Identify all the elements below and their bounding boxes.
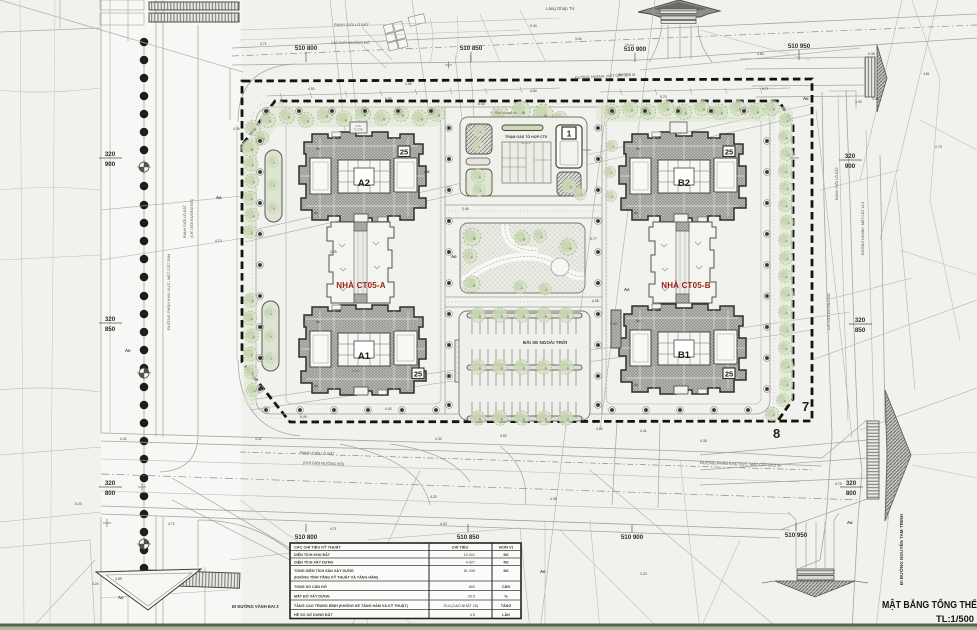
- svg-text:4.35: 4.35: [700, 439, 707, 443]
- svg-text:4.35: 4.35: [550, 497, 557, 501]
- svg-text:4.41: 4.41: [640, 429, 647, 433]
- svg-text:800: 800: [105, 490, 116, 497]
- svg-text:TRẠM GAS TỖ HỢP CT5: TRẠM GAS TỖ HỢP CT5: [505, 134, 547, 139]
- svg-text:B1: B1: [678, 350, 691, 361]
- svg-text:DIỆN TÍCH XÂY DỰNG: DIỆN TÍCH XÂY DỰNG: [294, 560, 333, 565]
- svg-text:25: 25: [414, 370, 422, 379]
- svg-text:19,8 (CAO NHẤT 25): 19,8 (CAO NHẤT 25): [443, 604, 478, 608]
- svg-text:Ao: Ao: [424, 169, 430, 174]
- svg-text:8: 8: [773, 426, 780, 441]
- svg-text:Ao: Ao: [847, 520, 853, 525]
- svg-text:320: 320: [845, 153, 856, 160]
- svg-text:320: 320: [855, 317, 866, 324]
- svg-text:A2: A2: [358, 178, 370, 189]
- svg-text:5.38: 5.38: [868, 52, 875, 56]
- svg-text:Vườn: Vườn: [790, 156, 799, 160]
- svg-text:TL:1/500: TL:1/500: [936, 614, 974, 624]
- svg-text:BÃI XE NGOÀI TRỞI: BÃI XE NGOÀI TRỞI: [523, 339, 567, 345]
- svg-text:ĐI ĐƯỜNG VÀNH ĐAI 3: ĐI ĐƯỜNG VÀNH ĐAI 3: [232, 604, 279, 609]
- svg-text:4.84: 4.84: [530, 89, 537, 93]
- svg-text:RANH GIỚI LÔ ĐẤT: RANH GIỚI LÔ ĐẤT: [834, 166, 839, 200]
- svg-text:Vườn: Vườn: [625, 43, 634, 47]
- svg-text:TẦNG: TẦNG: [501, 604, 512, 608]
- svg-text:4.71: 4.71: [330, 527, 337, 531]
- svg-text:4.52: 4.52: [500, 434, 507, 438]
- svg-text:MẬT BẮNG TỔNG THỂ: MẬT BẮNG TỔNG THỂ: [882, 598, 977, 611]
- svg-text:B=4.0: B=4.0: [522, 141, 531, 145]
- svg-text:5.34: 5.34: [530, 24, 537, 28]
- svg-text:NHÀ CT05-A: NHÀ CT05-A: [336, 281, 386, 290]
- svg-text:4,5: 4,5: [470, 613, 475, 617]
- svg-text:4.43: 4.43: [385, 407, 392, 411]
- svg-text:25: 25: [725, 148, 733, 157]
- svg-text:850: 850: [105, 326, 116, 333]
- svg-text:4.50: 4.50: [596, 427, 603, 431]
- svg-text:3.45: 3.45: [872, 97, 879, 101]
- svg-text:Ao: Ao: [125, 348, 131, 353]
- svg-text:Ao: Ao: [216, 195, 222, 200]
- svg-text:320: 320: [105, 151, 116, 158]
- svg-text:4.43: 4.43: [440, 522, 447, 526]
- svg-text:510 800: 510 800: [295, 534, 318, 541]
- svg-text:4.08: 4.08: [592, 299, 599, 303]
- svg-text:4.81: 4.81: [923, 72, 930, 76]
- svg-text:75.338: 75.338: [353, 128, 363, 132]
- svg-text:CĂN: CĂN: [502, 584, 510, 589]
- svg-text:Ao: Ao: [624, 287, 630, 292]
- svg-text:TỔNG SỐ CĂN HỚ: TỔNG SỐ CĂN HỚ: [294, 584, 328, 589]
- svg-text:3.46: 3.46: [462, 207, 469, 211]
- svg-text:4.13: 4.13: [215, 239, 222, 243]
- svg-text:B2: B2: [678, 178, 690, 189]
- svg-text:3.23: 3.23: [640, 572, 647, 576]
- svg-text:510 950: 510 950: [785, 532, 808, 539]
- svg-text:900: 900: [105, 161, 116, 168]
- svg-text:4.32: 4.32: [435, 437, 442, 441]
- svg-text:3.44: 3.44: [575, 37, 582, 41]
- svg-text:3.24: 3.24: [92, 582, 99, 586]
- svg-text:(CHỈ GIỚI ĐƯỜNG ĐỎ): (CHỈ GIỚI ĐƯỜNG ĐỎ): [189, 199, 194, 238]
- svg-text:TẦNG CAO TRUNG BÌNH (KHÔNG KỂ: TẦNG CAO TRUNG BÌNH (KHÔNG KỂ TẦNG HẦM V…: [294, 603, 409, 608]
- svg-text:LẦN: LẦN: [502, 613, 510, 617]
- svg-text:26,5: 26,5: [468, 595, 475, 599]
- svg-text:4.72: 4.72: [168, 522, 175, 526]
- svg-text:(BĐXĐ): (BĐXĐ): [618, 72, 630, 77]
- svg-text:510 850: 510 850: [460, 45, 483, 52]
- svg-text:800: 800: [469, 585, 475, 589]
- svg-text:320: 320: [105, 316, 116, 323]
- svg-text:510 800: 510 800: [295, 45, 318, 52]
- svg-text:TỔNG DIỆN TÍCH SÀN XÂY DỰNG: TỔNG DIỆN TÍCH SÀN XÂY DỰNG: [294, 568, 354, 573]
- svg-text:10.201: 10.201: [464, 553, 475, 557]
- svg-text:Ao: Ao: [451, 254, 457, 259]
- svg-text:320: 320: [105, 480, 116, 487]
- svg-text:900: 900: [845, 163, 856, 170]
- svg-text:850: 850: [855, 327, 866, 334]
- svg-text:MẬT ĐỚ XÂY DỰNG: MẬT ĐỚ XÂY DỰNG: [294, 594, 330, 599]
- svg-text:RANH GIỚI LÔ ĐẤT: RANH GIỚI LÔ ĐẤT: [334, 22, 370, 27]
- svg-text:4.50: 4.50: [308, 87, 315, 91]
- svg-text:800: 800: [846, 490, 857, 497]
- svg-text:CHỈ GIỚI ĐƯỜNG ĐỎ: CHỈ GIỚI ĐƯỜNG ĐỎ: [826, 293, 831, 330]
- svg-text:4.42: 4.42: [255, 437, 262, 441]
- svg-text:25: 25: [400, 148, 408, 157]
- svg-text:Khu chung cư: Khu chung cư: [495, 111, 517, 115]
- svg-text:RANH GIỚI LÔ ĐẤT: RANH GIỚI LÔ ĐẤT: [182, 204, 187, 238]
- svg-text:5.77: 5.77: [590, 237, 597, 241]
- svg-text:4.84: 4.84: [757, 52, 764, 56]
- svg-text:4.42: 4.42: [120, 437, 127, 441]
- svg-text:M2: M2: [503, 561, 508, 565]
- svg-text:5.49: 5.49: [300, 415, 307, 419]
- svg-text:Ao: Ao: [118, 595, 124, 600]
- svg-text:4.55: 4.55: [405, 82, 412, 86]
- svg-text:5.71: 5.71: [762, 87, 769, 91]
- svg-text:4.71: 4.71: [260, 42, 267, 46]
- svg-text:M2: M2: [503, 569, 508, 573]
- svg-text:NHÀ CT05-B: NHÀ CT05-B: [661, 281, 711, 290]
- svg-text:4.39: 4.39: [233, 127, 240, 131]
- svg-text:DIỆN TÍCH KHU ĐẤT: DIỆN TÍCH KHU ĐẤT: [294, 552, 331, 557]
- svg-text:5.44: 5.44: [478, 102, 485, 106]
- svg-text:510 900: 510 900: [624, 46, 647, 53]
- svg-text:3.40: 3.40: [610, 322, 617, 326]
- svg-text:4.027: 4.027: [466, 561, 475, 565]
- svg-text:M2: M2: [503, 553, 508, 557]
- svg-text:510 900: 510 900: [621, 534, 644, 541]
- svg-text:CÁC CHỈ TIÊU KỸ THUẬT: CÁC CHỈ TIÊU KỸ THUẬT: [294, 545, 342, 550]
- svg-text:ĐƠN VỊ: ĐƠN VỊ: [499, 545, 513, 550]
- svg-text:HỆ SỐ SỬ DỤNG ĐẤT: HỆ SỐ SỬ DỤNG ĐẤT: [294, 612, 333, 617]
- svg-text:3.43: 3.43: [855, 100, 862, 104]
- svg-text:Làng Gháp Tứ: Làng Gháp Tứ: [546, 6, 575, 11]
- svg-text:1: 1: [567, 130, 572, 139]
- svg-text:320: 320: [846, 480, 857, 487]
- svg-text:Ao: Ao: [540, 569, 546, 574]
- svg-text:ĐI ĐƯỜNG NGUYỄN TAM TRINH: ĐI ĐƯỜNG NGUYỄN TAM TRINH: [897, 513, 904, 585]
- svg-text:C13C: C13C: [352, 369, 361, 373]
- svg-text:CHỈ GIỚI ĐƯỜNG ĐỎ: CHỈ GIỚI ĐƯỜNG ĐỎ: [331, 40, 370, 45]
- svg-text:CHỈ TIÊU: CHỈ TIÊU: [452, 545, 469, 550]
- svg-text:81.330: 81.330: [464, 569, 475, 573]
- svg-text:Ao: Ao: [803, 96, 809, 101]
- svg-text:4.23: 4.23: [430, 495, 437, 499]
- svg-text:2.73: 2.73: [935, 145, 942, 149]
- svg-text:(KHÔNG TÍNH TẦNG KỸ THUẬT VÀ T: (KHÔNG TÍNH TẦNG KỸ THUẬT VÀ TẦNG HẦM): [294, 575, 379, 580]
- svg-text:ĐƯỜNG PHÂN KHU VỰC, MẬT CẮT 30: ĐƯỜNG PHÂN KHU VỰC, MẬT CẮT 30M: [166, 254, 171, 330]
- svg-text:510 850: 510 850: [457, 534, 480, 541]
- svg-text:A1: A1: [358, 351, 371, 362]
- svg-text:510 950: 510 950: [788, 43, 811, 50]
- svg-text:4.79: 4.79: [835, 482, 842, 486]
- svg-text:5.23: 5.23: [75, 502, 82, 506]
- svg-text:ĐƯỜNG NHÁNH, MẬT CẮT 11,5: ĐƯỜNG NHÁNH, MẬT CẮT 11,5: [860, 202, 865, 255]
- svg-text:3.89: 3.89: [115, 577, 122, 581]
- svg-text:25: 25: [725, 370, 733, 379]
- svg-text:7: 7: [802, 399, 809, 414]
- svg-text:3.25: 3.25: [330, 250, 337, 254]
- svg-text:5.70: 5.70: [660, 95, 667, 99]
- svg-text:6.00: 6.00: [385, 97, 392, 101]
